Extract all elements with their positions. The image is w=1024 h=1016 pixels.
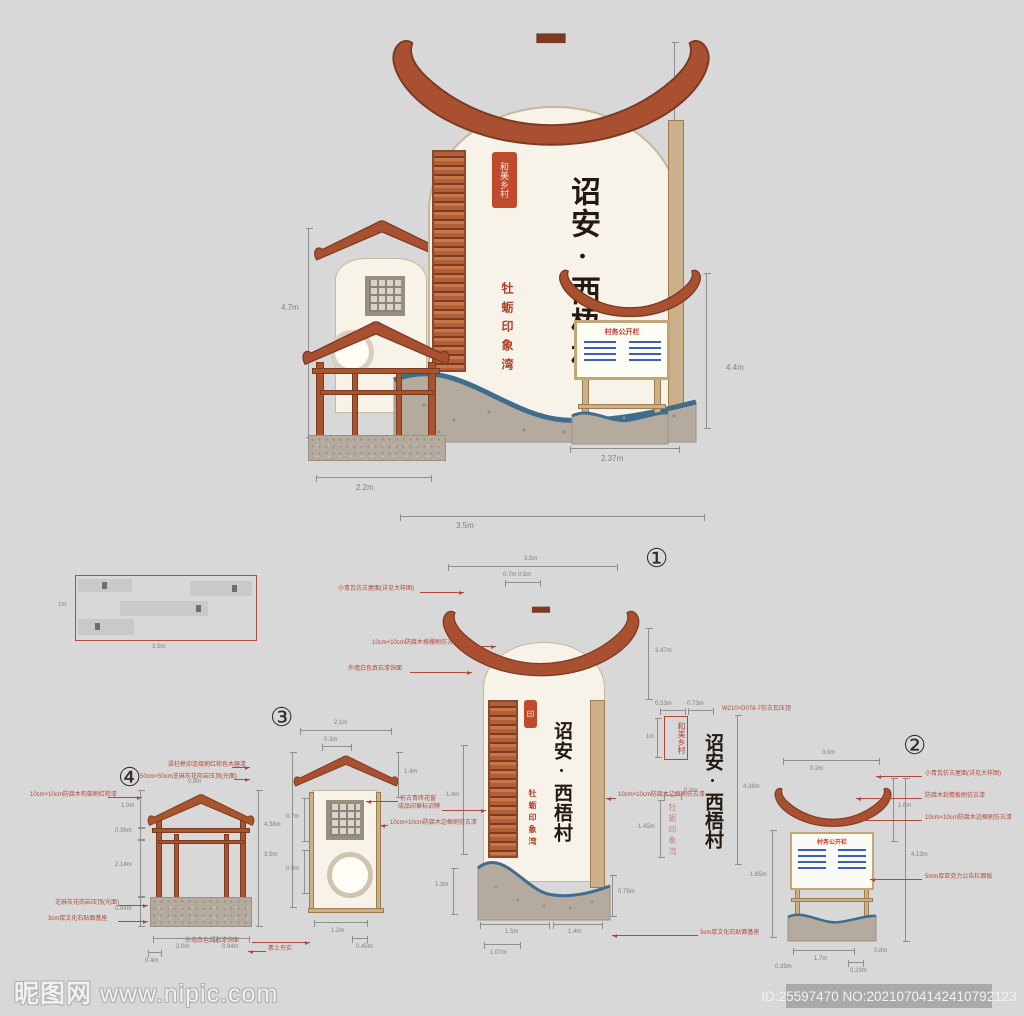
d1-dim-roof-line	[648, 628, 649, 700]
d3-dim-b1-line	[314, 922, 368, 923]
d1-annotation-base-leader	[612, 935, 698, 936]
plan-mark-1	[102, 582, 107, 589]
d2-dim-baser: 0.8m	[874, 948, 887, 954]
d1-type-subh-line	[660, 800, 661, 858]
d4-dim-l1: 1.0m	[121, 803, 134, 809]
d1-dim-base: 1.3m	[435, 882, 448, 888]
d1-type-sealside: 1m	[646, 734, 654, 740]
d4-beam-mid	[158, 840, 244, 844]
d3-dim-seg1-line	[304, 798, 305, 842]
d4-annotation-coping-top-leader	[234, 779, 250, 780]
d2-dim-b1: 1.7m	[814, 956, 827, 962]
d4-annotation-frame-leader	[108, 797, 142, 798]
d4-dim-total: 3.5m	[264, 852, 277, 858]
circle-number-2: ②	[903, 730, 926, 761]
d4-annotation-joint-leader	[232, 767, 250, 768]
d1-dim-b3: 1.07m	[490, 950, 507, 956]
d1-dim-lattice-line	[463, 745, 464, 855]
dim-22m: 2.2m	[356, 483, 374, 492]
d4-annotation-soil-leader	[248, 951, 266, 952]
d4-dim-l4-line	[140, 897, 141, 927]
d1-dim-baser: 0.75m	[618, 889, 635, 895]
dim-237m-line	[570, 448, 680, 449]
d3-dim-top-line	[300, 730, 392, 731]
board-3d-stone-base	[572, 400, 668, 444]
d1-dim-top-line	[448, 566, 618, 567]
d3-rail-left	[309, 792, 314, 910]
d3-annotation-frame-leader	[380, 825, 388, 826]
d4-base	[150, 897, 252, 927]
d4-annotation-stone: 3cm厚文化石贴面基座	[48, 916, 107, 923]
plan-width-label: 3.5m	[152, 644, 165, 650]
circle-number-4: ④	[118, 762, 141, 793]
d2-annotation-roof-leader	[876, 776, 922, 777]
watermark-site-url: www.nipic.com	[100, 980, 278, 1008]
d1-annotation-wall: 外墙白色真石漆饰面	[348, 666, 402, 673]
d2-annotation-fascia-leader	[856, 798, 922, 799]
d1-dim-base-line	[453, 868, 454, 915]
d3-dim-b2-line	[352, 938, 368, 939]
d1-type-sealh: 0.73m	[687, 701, 704, 707]
d1-dim-baser-line	[612, 875, 613, 917]
d1-type-subtop-line	[664, 795, 682, 796]
gazebo-3d-base	[308, 435, 446, 461]
d3-dim-total-line	[292, 752, 293, 908]
d2-annotation-roof: 小青瓦仿古屋面(详见大样图)	[925, 771, 1001, 778]
d1-annotation-seal-leader	[442, 810, 486, 811]
d4-dim-l2-line	[140, 828, 141, 840]
d2-dim-b3: 0.23m	[850, 968, 867, 974]
d3-dim-roof-line	[398, 752, 399, 798]
d2-annotation-frame-leader	[840, 820, 922, 821]
d2-dim-tip: 0.2m	[810, 766, 823, 772]
d1-type-seal-text: 和美乡村	[665, 717, 687, 759]
d4-dim-apex: 0.8m	[188, 779, 201, 785]
watermark: 昵图网 www.nipic.com	[14, 974, 278, 1010]
d1-type-subtop: 0.3m	[684, 788, 697, 794]
circle-number-1: ①	[645, 543, 668, 574]
d1-annotation-roof: 小青瓦仿古屋面(详见大样图)	[338, 586, 414, 593]
d1-type-subh: 1.45m	[638, 824, 655, 830]
dim-44m-line	[706, 273, 707, 429]
d4-dim-l4: 0.94m	[115, 906, 132, 912]
d2-annotation-fascia: 防腐木封檐板刷仿古漆	[925, 793, 985, 800]
d1-annotation-grille: 10cm×10cm防腐木格栅刷仿古漆	[372, 640, 459, 647]
d2-annotation-frame: 10cm×10cm防腐木边框刷仿古漆	[925, 815, 1012, 822]
d2-stone-base	[788, 905, 876, 941]
d2-dim-left: 1.65m	[750, 872, 767, 878]
dim-35m: 3.5m	[456, 521, 474, 530]
d2-dim-top-line	[783, 760, 880, 761]
d3-annotation-wall-leader	[252, 942, 310, 943]
watermark-site-name: 昵图网	[14, 980, 92, 1008]
d3-dim-top: 2.1m	[334, 720, 347, 726]
dim-237m: 2.37m	[601, 454, 623, 463]
d3-annotation-frame: 10cm×10cm防腐木边框刷仿古漆	[390, 820, 477, 827]
plan-mark-3	[196, 605, 201, 612]
d2-roof	[772, 776, 894, 838]
d1-dim-b2: 1.4m	[568, 929, 581, 935]
d1-type-sealside-line	[657, 718, 658, 758]
d2-dim-total-line	[905, 778, 906, 942]
d1-annotation-roof-leader	[420, 592, 464, 593]
d3-dim-b1: 1.2m	[331, 928, 344, 934]
plan-mark-2	[232, 585, 237, 592]
d2-panel: 村务公开栏	[790, 832, 874, 890]
board-3d-text-lines-left	[584, 341, 616, 365]
d3-annotation-window-leader	[366, 801, 398, 802]
d1-dim-topsub: 0.7m 0.5m	[503, 572, 531, 578]
d1-type-sealh-line	[688, 710, 714, 711]
d2-crossbar	[791, 898, 873, 902]
plan-side-label: 1m	[58, 602, 66, 608]
d4-dim-b1: 0.4m	[145, 958, 158, 964]
d4-annotation-stone-leader	[118, 921, 148, 922]
d4-dim-b3: 0.94m	[222, 944, 239, 950]
d2-dim-b2: 0.35m	[775, 964, 792, 970]
d2-dim-roof-line	[893, 778, 894, 842]
d4-dim-b1-line	[148, 952, 162, 953]
d2-dim-b1-line	[793, 950, 855, 951]
dim-35m-line	[400, 516, 705, 517]
d1-type-titleh-line	[737, 715, 738, 865]
d1-seal: 印	[524, 700, 537, 728]
d4-dim-b3-line	[217, 938, 250, 939]
d3-lattice-window	[326, 800, 364, 840]
d3-dim-total: 4.38m	[264, 822, 281, 828]
d1-type-seal: 和美乡村	[664, 716, 688, 760]
main-sign-3d-seal: 和美乡村	[492, 152, 517, 208]
d3-dim-seg2-line	[304, 850, 305, 894]
d1-type-sealw-line	[660, 710, 686, 711]
d1-stone-base	[478, 842, 610, 920]
d3-dim-seg2: 0.9m	[286, 866, 299, 872]
d1-dim-roof: 3.47m	[655, 648, 672, 654]
d3-dim-seg1: 0.7m	[286, 814, 299, 820]
d3-plinth	[308, 908, 384, 913]
d1-annotation-rail-leader	[606, 798, 616, 799]
d1-annotation-tile: W210×D078-7仿古瓦压顶	[722, 706, 791, 713]
dim-44m: 4.4m	[726, 363, 744, 372]
d3-dim-topsub: 0.3m	[324, 737, 337, 743]
d4-dim-l3: 2.14m	[115, 862, 132, 868]
d1-dim-b2-line	[553, 924, 603, 925]
d4-dim-total-line	[258, 790, 259, 927]
board-3d-panel: 村务公开栏	[574, 320, 670, 380]
d3-moon-window	[327, 852, 373, 898]
d1-roof	[438, 585, 644, 701]
d1-title: 诏安·西梧村	[541, 702, 575, 862]
d4-dim-l1-line	[140, 790, 141, 828]
d4-roof	[146, 788, 256, 836]
d1-dim-b3-line	[484, 944, 521, 945]
d1-annotation-grille-leader	[460, 646, 496, 647]
d2-dim-left-line	[772, 830, 773, 938]
d1-annotation-seal: 成品印章标识牌	[398, 804, 440, 811]
d2-annotation-panel: 5mm厚亚克力公告栏面板	[925, 874, 992, 881]
d1-type-titleh: 4.38m	[743, 784, 760, 790]
plan-bar-4	[78, 619, 134, 635]
d2-dim-top: 3.0m	[822, 750, 835, 756]
d3-annotation-window: 仿古青砖花窗	[400, 796, 436, 803]
d2-annotation-panel-leader	[870, 879, 922, 880]
d1-annotation-wall-leader	[410, 672, 472, 673]
d3-rail-right	[376, 792, 381, 910]
gazebo-3d-roof	[300, 314, 452, 378]
d1-dim-b1-line	[480, 924, 550, 925]
d4-dim-b2: 2.0m	[176, 944, 189, 950]
d3-dim-topsub-line	[322, 746, 352, 747]
d2-panel-title: 村务公开栏	[792, 837, 872, 846]
d1-dim-top: 3.5m	[524, 556, 537, 562]
d2-dim-b3-line	[848, 962, 864, 963]
d1-wood-grille	[488, 700, 518, 858]
plan-bar-2	[190, 581, 252, 596]
d1-dim-b1: 1.5m	[505, 929, 518, 935]
d4-dim-l2: 0.36m	[115, 828, 132, 834]
dim-22m-line	[316, 477, 432, 478]
d2-dim-total: 4.13m	[911, 852, 928, 858]
d2-text-lines-right	[838, 849, 866, 873]
board-3d-title: 村务公开栏	[577, 327, 667, 337]
plan-bar-3	[120, 601, 208, 616]
d4-annotation-coping: 芝麻灰花岗岩压顶(光面)	[55, 900, 119, 907]
d4-dim-b2-line	[153, 938, 215, 939]
board-3d-text-lines-right	[629, 341, 661, 365]
d1-type-title: 诏安·西梧村	[694, 715, 726, 867]
gazebo-3d-beam-mid	[320, 390, 434, 395]
d4-annotation-coping-leader	[118, 905, 148, 906]
d1-type-subtitle: 牡蛎印象湾	[666, 800, 678, 860]
d1-type-sealw: 0.53m	[655, 701, 672, 707]
dim-47m: 4.7m	[281, 303, 299, 312]
monument-3d-lattice-window	[365, 276, 405, 316]
d3-dim-b2: 0.45m	[356, 944, 373, 950]
d3-dim-roof: 1.4m	[404, 769, 417, 775]
d4-dim-l3-line	[140, 840, 141, 897]
d1-dim-lattice: 1.4m	[446, 792, 459, 798]
d4-annotation-soil: 素土夯实	[268, 946, 292, 953]
d1-annotation-base: 3cm厚文化石贴面基座	[700, 930, 759, 937]
plan-mark-4	[95, 623, 100, 630]
image-id-badge: ID:25597470 NO:20210704142410792123	[786, 984, 992, 1008]
circle-number-3: ③	[270, 702, 293, 733]
board-3d-roof	[556, 260, 704, 326]
d3-roof	[292, 748, 400, 798]
d4-annotation-frame: 10cm×10cm防腐木构架刷红棕漆	[30, 792, 117, 799]
d2-text-lines-left	[798, 849, 826, 873]
main-sign-3d-roof	[385, 33, 717, 151]
design-sheet: 10m 4.4m 4.7m 2.2m 2.37m 3.5m 和美乡村 诏安·西梧…	[0, 0, 1024, 1016]
d1-dim-topsub-line	[505, 582, 541, 583]
